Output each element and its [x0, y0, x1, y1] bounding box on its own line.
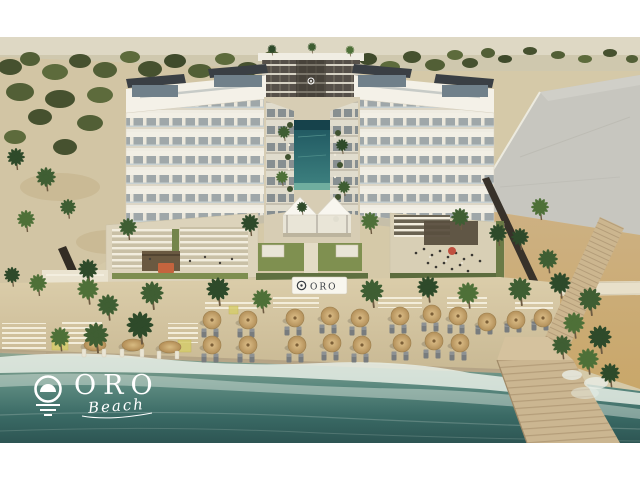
- tree: [578, 55, 592, 63]
- courtyard-pool: [294, 120, 330, 190]
- sun-lounger: [448, 325, 453, 334]
- sun-lounger: [460, 325, 465, 334]
- sun-lounger-white: [102, 349, 106, 357]
- sun-lounger: [238, 354, 243, 363]
- right-beach-terrace: [390, 213, 504, 283]
- tree: [6, 83, 34, 101]
- sun-lounger-white: [82, 349, 86, 357]
- sun-lounger: [402, 325, 407, 334]
- sun-lounger: [436, 350, 441, 359]
- tree: [164, 54, 186, 68]
- tree: [77, 115, 103, 131]
- tree: [215, 53, 235, 65]
- sun-lounger: [334, 352, 339, 361]
- resort-left-wing: [126, 64, 268, 237]
- tree: [626, 55, 638, 63]
- tree: [28, 109, 52, 125]
- sun-lounger: [332, 325, 337, 334]
- yellow-beach-mat: [229, 306, 238, 314]
- sun-lounger: [422, 323, 427, 332]
- sun-lounger: [404, 352, 409, 361]
- sun-lounger: [297, 327, 302, 336]
- walkway-mat: [273, 297, 319, 308]
- sun-lounger-white: [140, 349, 144, 357]
- sun-lounger: [285, 327, 290, 336]
- sun-lounger: [250, 354, 255, 363]
- tree: [4, 130, 26, 144]
- restaurant-roof: [424, 221, 478, 245]
- tree: [447, 50, 463, 60]
- brand-logo-texts: ORO Beach: [74, 373, 160, 421]
- sun-lounger: [390, 325, 395, 334]
- tree: [120, 51, 140, 63]
- sun-lounger: [450, 352, 455, 361]
- sun-lounger: [238, 329, 243, 338]
- rendering-frame: ORO ORO Beach: [0, 0, 640, 480]
- tree: [53, 139, 77, 155]
- red-umbrella: [448, 247, 456, 255]
- sun-lounger: [462, 352, 467, 361]
- tree: [603, 49, 617, 57]
- sun-lounger: [350, 327, 355, 336]
- pier-foam: [571, 387, 599, 399]
- sign-text: ORO: [310, 283, 338, 293]
- tree: [45, 90, 75, 108]
- sun-lounger-white: [157, 351, 161, 359]
- tree: [69, 54, 91, 68]
- tree: [481, 48, 495, 58]
- sun-lounger: [352, 354, 357, 363]
- courtyard: [264, 97, 360, 247]
- tree: [138, 61, 162, 77]
- tree: [20, 52, 40, 66]
- tree: [403, 51, 421, 63]
- sand-patch: [20, 173, 100, 201]
- sun-lounger: [214, 354, 219, 363]
- sun-lounger-white: [175, 351, 179, 359]
- pier-foam: [562, 370, 582, 380]
- tree: [462, 58, 478, 68]
- tree: [42, 64, 68, 80]
- tree: [498, 55, 512, 63]
- tree: [551, 51, 565, 59]
- coral-canopy: [158, 263, 174, 273]
- sun-lounger: [364, 354, 369, 363]
- sun-lounger: [202, 354, 207, 363]
- sun-lounger: [320, 325, 325, 334]
- resort-aerial-rendering: ORO ORO Beach: [0, 37, 640, 443]
- beach-sign: ORO: [292, 277, 347, 294]
- tree: [523, 47, 537, 55]
- brand-logo: ORO Beach: [28, 373, 160, 421]
- sun-lounger: [202, 329, 207, 338]
- sun-lounger: [322, 352, 327, 361]
- sun-lounger: [362, 327, 367, 336]
- sun-lounger: [299, 354, 304, 363]
- brand-logo-word: ORO: [74, 373, 160, 399]
- tree: [425, 59, 445, 71]
- tree: [93, 62, 117, 78]
- sun-lounger-white: [120, 349, 124, 357]
- sun-lounger: [424, 350, 429, 359]
- sun-wave-icon: [28, 373, 68, 419]
- sun-lounger: [392, 352, 397, 361]
- tree: [188, 64, 212, 78]
- resort-right-wing: [352, 64, 494, 237]
- tree: [87, 87, 113, 103]
- sun-lounger: [287, 354, 292, 363]
- sun-lounger: [434, 323, 439, 332]
- walkway-mat: [378, 297, 422, 308]
